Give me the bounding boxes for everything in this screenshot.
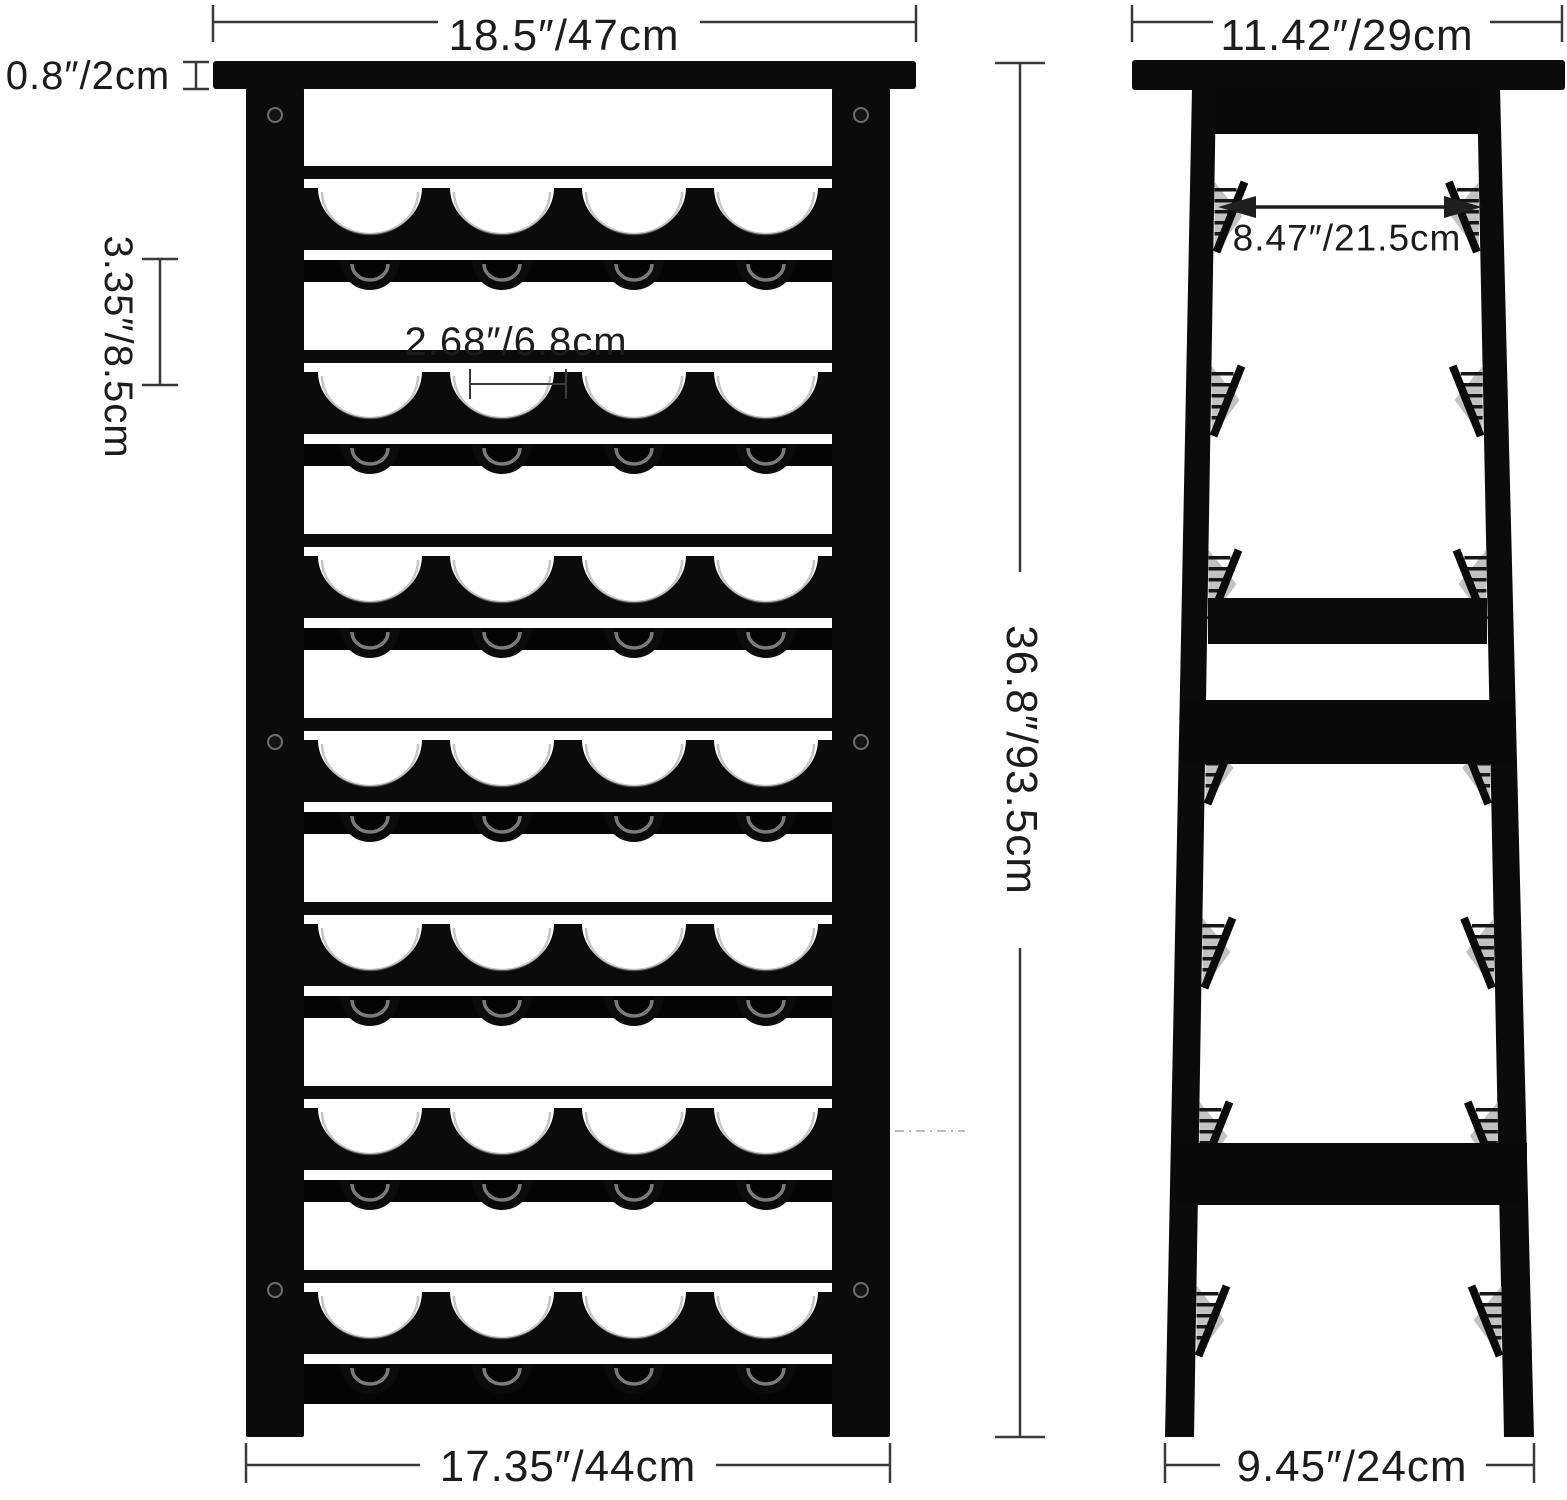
side-apron	[1192, 88, 1500, 134]
notch-tooth-right	[1457, 188, 1479, 192]
notch-tooth-right	[1467, 567, 1486, 571]
notch-tooth-left	[1215, 199, 1234, 203]
label-top-width: 18.5″/47cm	[448, 14, 679, 58]
front-left-leg	[246, 88, 304, 1437]
notch-tooth-right	[1479, 1119, 1498, 1123]
side-top-board	[1132, 60, 1565, 90]
screw-hole	[854, 1283, 868, 1297]
bottle-scallop-rail	[304, 556, 832, 618]
label-bottom-width: 17.35″/44cm	[440, 1445, 697, 1489]
front-top-board	[213, 61, 916, 89]
shelf-row	[304, 166, 832, 290]
back-rail-strip	[304, 534, 832, 547]
bottle-scallop-rail	[304, 1292, 832, 1354]
notch-tooth-left	[1209, 556, 1231, 560]
notch-tooth-left	[1200, 1119, 1219, 1123]
screw-hole	[854, 735, 868, 749]
notch-tooth-left	[1215, 188, 1237, 192]
side-view	[1132, 60, 1565, 1437]
side-inner-depth-arrow	[1218, 196, 1482, 218]
back-rail-strip	[304, 902, 832, 915]
label-row-spacing: 3.35″/8.5cm	[98, 235, 138, 458]
label-top-thickness: 0.8″/2cm	[6, 56, 170, 96]
bottle-scallop-rail	[304, 740, 832, 802]
notch-tooth-right	[1480, 1292, 1502, 1296]
notch-tooth-right	[1461, 372, 1483, 376]
notch-tooth-right	[1483, 1303, 1502, 1307]
back-rail-strip	[304, 1086, 832, 1099]
notch-tooth-left	[1203, 935, 1222, 939]
side-lower-stretcher	[1171, 1143, 1527, 1205]
notch-tooth-left	[1200, 1108, 1222, 1112]
shelf-row	[304, 902, 832, 1026]
bottle-scallop-rail	[304, 1108, 832, 1170]
notch-tooth-left	[1197, 1303, 1216, 1307]
label-slot-width: 2.68″/6.8cm	[404, 322, 627, 362]
notch-tooth-right	[1464, 556, 1486, 560]
shelf-row	[304, 534, 832, 658]
notch-tooth-left	[1197, 1292, 1219, 1296]
notch-tooth-left	[1209, 567, 1228, 571]
notch-tooth-right	[1476, 1108, 1498, 1112]
shelf-row	[304, 1086, 832, 1210]
diagram-canvas: 18.5″/47cm 0.8″/2cm 3.35″/8.5cm 2.68″/6.…	[0, 0, 1567, 1500]
shelf-row	[304, 1270, 832, 1404]
label-side-bottom-depth: 9.45″/24cm	[1236, 1445, 1467, 1489]
screw-hole	[268, 735, 282, 749]
bottle-scallop-rail	[304, 924, 832, 986]
side-upper-stretcher	[1208, 598, 1487, 644]
notch-tooth-left	[1203, 924, 1225, 928]
screw-hole	[268, 108, 282, 122]
dim-row-spacing	[142, 259, 178, 385]
shelf-row	[304, 718, 832, 842]
label-side-inner-depth: 8.47″/21.5cm	[1233, 220, 1462, 257]
notch-tooth-left	[1212, 383, 1231, 387]
back-rail-strip	[304, 166, 832, 179]
bottle-scallop-rail	[304, 372, 832, 434]
notch-tooth-right	[1475, 935, 1494, 939]
bottle-scallop-rail	[304, 188, 832, 250]
label-side-top-depth: 11.42″/29cm	[1220, 14, 1473, 58]
notch-tooth-right	[1464, 383, 1483, 387]
back-rail-strip	[304, 1270, 832, 1283]
label-height: 36.8″/93.5cm	[999, 625, 1043, 895]
notch-tooth-right	[1472, 924, 1494, 928]
notch-tooth-left	[1212, 372, 1234, 376]
front-right-leg	[832, 88, 890, 1437]
dim-top-thickness	[183, 62, 209, 89]
shelf-row	[304, 350, 832, 474]
front-view	[213, 61, 916, 1437]
screw-hole	[268, 1283, 282, 1297]
back-rail-strip	[304, 718, 832, 731]
screw-hole	[854, 108, 868, 122]
side-middle-stretcher	[1180, 700, 1515, 764]
